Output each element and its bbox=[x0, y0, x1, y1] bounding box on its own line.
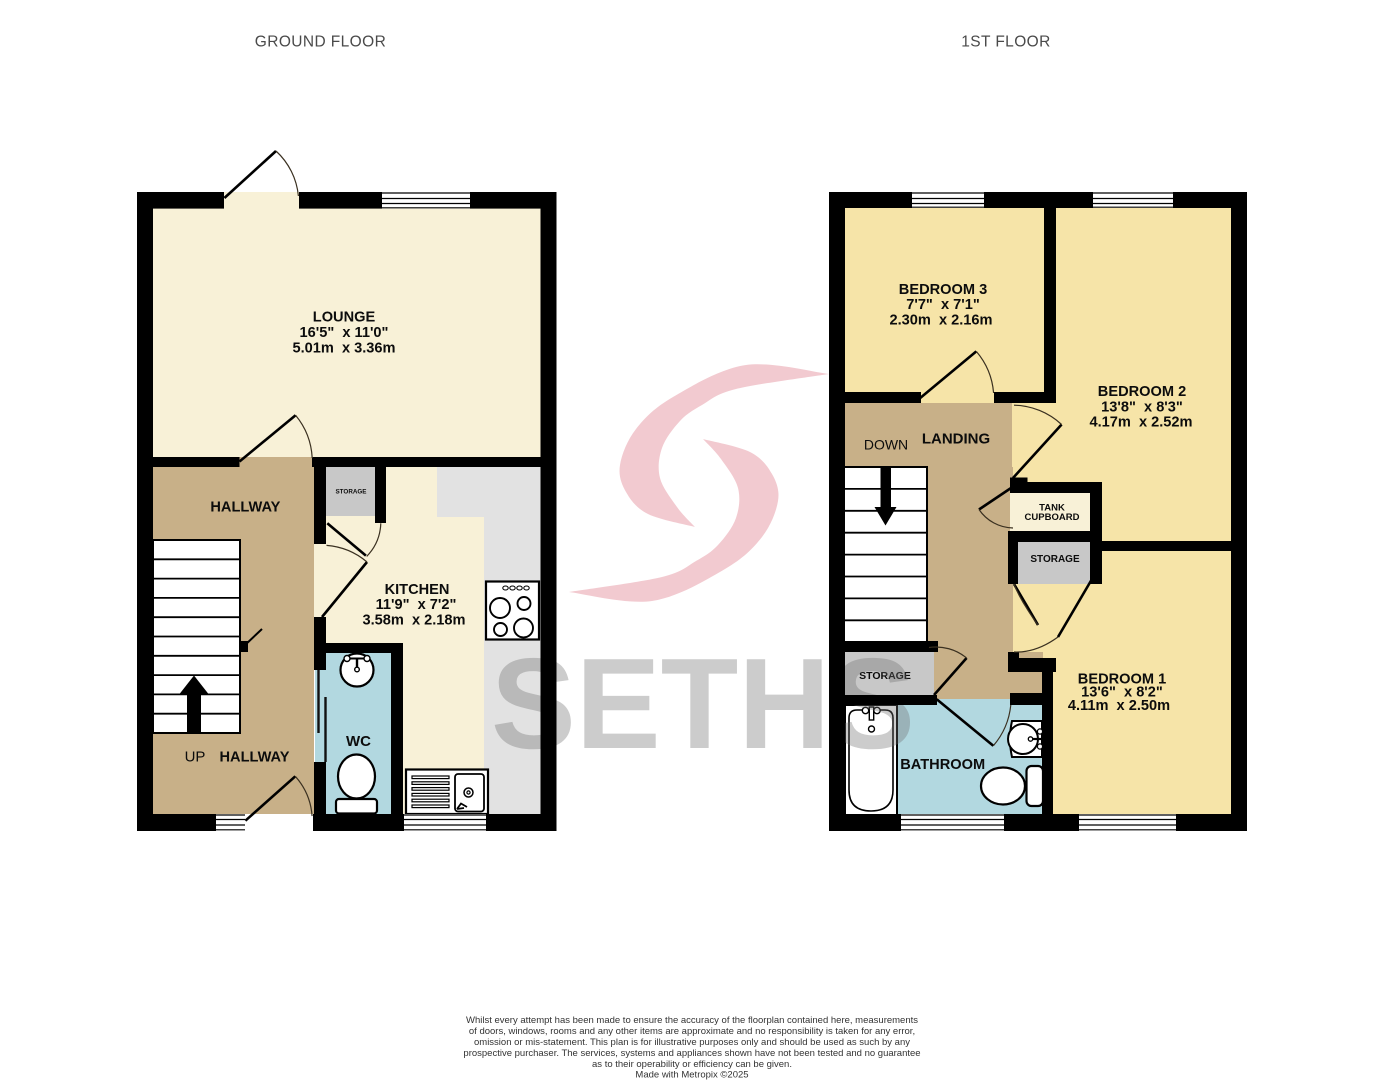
svg-text:Made with Metropix ©2025: Made with Metropix ©2025 bbox=[635, 1070, 748, 1080]
svg-text:UP: UP bbox=[185, 749, 206, 766]
svg-text:DOWN: DOWN bbox=[864, 437, 908, 453]
svg-text:3.58m x 2.18m: 3.58m x 2.18m bbox=[362, 612, 465, 628]
svg-text:omission or mis-statement. Thi: omission or mis-statement. This plan is … bbox=[474, 1037, 910, 1048]
svg-text:16'5" x 11'0": 16'5" x 11'0" bbox=[300, 325, 389, 341]
svg-text:HALLWAY: HALLWAY bbox=[210, 500, 280, 516]
svg-text:STORAGE: STORAGE bbox=[1030, 554, 1080, 565]
svg-text:GROUND FLOOR: GROUND FLOOR bbox=[255, 34, 386, 51]
svg-text:CUPBOARD: CUPBOARD bbox=[1025, 512, 1080, 523]
svg-text:BEDROOM 3: BEDROOM 3 bbox=[899, 282, 987, 298]
svg-text:HALLWAY: HALLWAY bbox=[219, 750, 289, 766]
svg-text:STORAGE: STORAGE bbox=[335, 489, 366, 496]
svg-text:2.30m x 2.16m: 2.30m x 2.16m bbox=[889, 312, 992, 328]
svg-text:4.11m x 2.50m: 4.11m x 2.50m bbox=[1068, 698, 1170, 714]
svg-text:1ST FLOOR: 1ST FLOOR bbox=[961, 34, 1050, 51]
svg-text:of doors, windows, rooms and a: of doors, windows, rooms and any other i… bbox=[469, 1026, 915, 1037]
svg-text:5.01m x 3.36m: 5.01m x 3.36m bbox=[292, 340, 395, 356]
svg-text:as to their operability or eff: as to their operability or efficiency ca… bbox=[592, 1059, 792, 1070]
svg-text:4.17m x 2.52m: 4.17m x 2.52m bbox=[1089, 415, 1192, 431]
svg-text:11'9" x 7'2": 11'9" x 7'2" bbox=[376, 597, 457, 613]
svg-text:13'8" x 8'3": 13'8" x 8'3" bbox=[1101, 399, 1183, 415]
svg-text:KITCHEN: KITCHEN bbox=[385, 582, 450, 598]
svg-text:Whilst every attempt has been: Whilst every attempt has been made to en… bbox=[466, 1015, 918, 1026]
svg-text:7'7" x 7'1": 7'7" x 7'1" bbox=[906, 297, 980, 313]
svg-text:WC: WC bbox=[346, 733, 371, 750]
svg-text:prospective purchaser. The ser: prospective purchaser. The services, sys… bbox=[463, 1048, 920, 1059]
svg-text:LOUNGE: LOUNGE bbox=[313, 310, 376, 326]
svg-text:BEDROOM 2: BEDROOM 2 bbox=[1098, 384, 1186, 400]
svg-text:LANDING: LANDING bbox=[922, 431, 990, 448]
